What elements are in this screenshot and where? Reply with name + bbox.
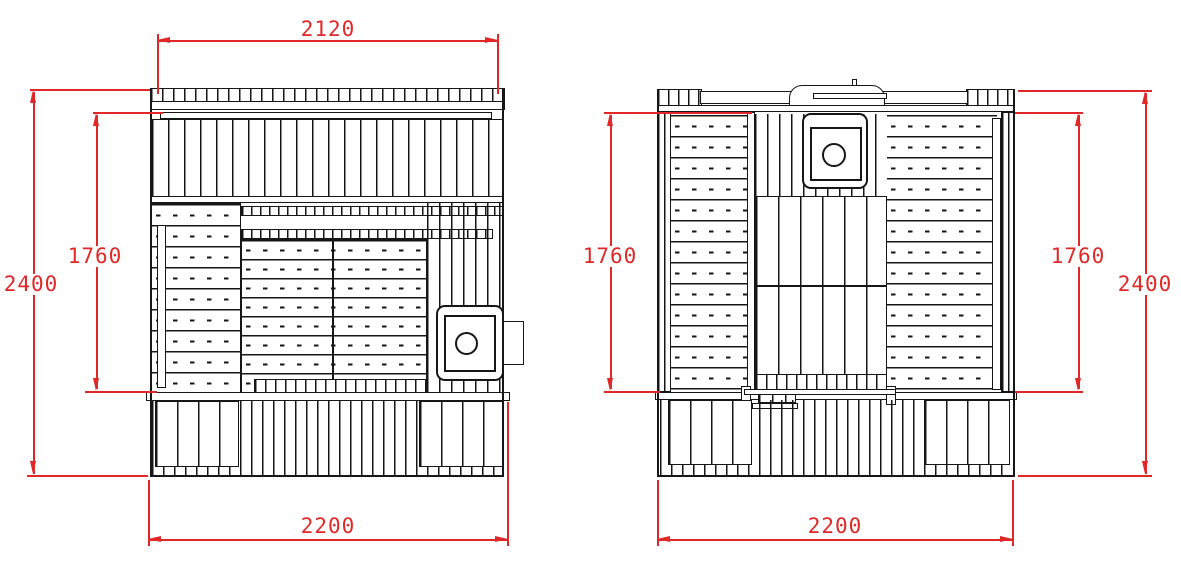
right-door-seam — [755, 285, 887, 287]
dim-1760RL-label: 1760 — [581, 246, 640, 267]
dim-2400R-ext-bottom — [1018, 475, 1152, 477]
left-stove-feed-duct — [503, 321, 524, 365]
dim-1760RL-ext-bottom — [604, 391, 660, 393]
dim-1760L-arrow-bottom — [93, 378, 99, 391]
dim-2400L-ext-bottom — [27, 475, 148, 477]
dim-1760L-ext-top — [93, 112, 163, 114]
dim-2200L-arrow-right — [495, 536, 508, 542]
dim-2400R-arrow-bottom — [1142, 461, 1148, 474]
dim-1760L-ext-bottom — [85, 391, 157, 393]
dim-2200L-label: 2200 — [299, 516, 358, 537]
left-stove-door-glass — [455, 332, 478, 355]
dim-1760L-arrow-top — [93, 113, 99, 126]
dim-2200R-line — [657, 539, 1013, 541]
dim-1760L-label: 1760 — [66, 246, 125, 267]
right-corner-board-right — [992, 118, 1001, 390]
dim-2200L-ext-right — [507, 402, 509, 546]
chimney-collar — [813, 93, 887, 99]
right-ground-line — [657, 475, 1015, 477]
left-bench-boards — [241, 239, 427, 393]
dim-2200L-arrow-left — [148, 536, 161, 542]
dim-1760RR-label: 1760 — [1049, 246, 1108, 267]
dim-2120-arrow-right — [485, 37, 498, 43]
right-edge-planks-left — [657, 112, 671, 392]
dim-2200L-line — [148, 539, 508, 541]
dim-2120-arrow-left — [157, 37, 170, 43]
left-upper-wall-planks — [151, 119, 503, 199]
dim-2400L-arrow-bottom — [30, 461, 36, 474]
dim-2120-ext-right — [497, 34, 499, 94]
right-foundation-panel-right — [924, 400, 1010, 465]
left-upper-wall-rail — [151, 196, 503, 203]
left-edge-left — [150, 88, 152, 477]
dim-1760RL-arrow-bottom — [607, 378, 613, 391]
right-edge-left-line — [657, 90, 659, 477]
technical-drawing-canvas: 2120 2400 1760 2200 — [0, 0, 1181, 576]
dim-2200R-label: 2200 — [806, 516, 865, 537]
left-foundation-panel-left — [155, 401, 239, 467]
right-wall-panel-left — [671, 115, 747, 392]
dim-2200R-arrow-left — [657, 536, 670, 542]
left-subroof-board — [160, 112, 492, 119]
dim-1760RR-arrow-top — [1075, 113, 1081, 126]
dim-1760RR-ext-bottom — [1015, 391, 1083, 393]
right-corner-board-left — [747, 112, 755, 393]
left-wall-vertical-board — [157, 225, 166, 388]
right-roof-rail — [657, 105, 1015, 112]
dim-2200R-arrow-right — [1000, 536, 1013, 542]
dim-2400L-arrow-top — [30, 90, 36, 103]
right-foundation-panel-left — [668, 400, 752, 465]
left-foundation-panel-right — [419, 401, 503, 467]
dim-1760RR-ext-top — [1015, 112, 1083, 114]
dim-1760RL-arrow-top — [607, 113, 613, 126]
left-ground-line — [150, 475, 503, 477]
dim-2400R-ext-top — [1018, 90, 1152, 92]
dim-2120-ext-left — [157, 34, 159, 94]
right-stove-door-glass — [822, 143, 846, 167]
left-bench-divider — [332, 239, 334, 393]
dim-2120-label: 2120 — [299, 19, 358, 40]
dim-1760RL-ext-top — [604, 112, 752, 114]
dim-2400L-ext-top — [30, 89, 150, 91]
dim-1760RR-arrow-bottom — [1075, 378, 1081, 391]
right-wall-panel-right — [887, 115, 997, 392]
left-floor-board — [146, 392, 510, 401]
dim-2400R-arrow-top — [1142, 91, 1148, 104]
dim-2400R-label: 2400 — [1116, 274, 1175, 295]
left-roof-fascia — [150, 101, 505, 110]
dim-2400L-label: 2400 — [2, 274, 61, 295]
left-edge-right — [502, 88, 504, 477]
right-edge-right-line — [1013, 90, 1015, 477]
